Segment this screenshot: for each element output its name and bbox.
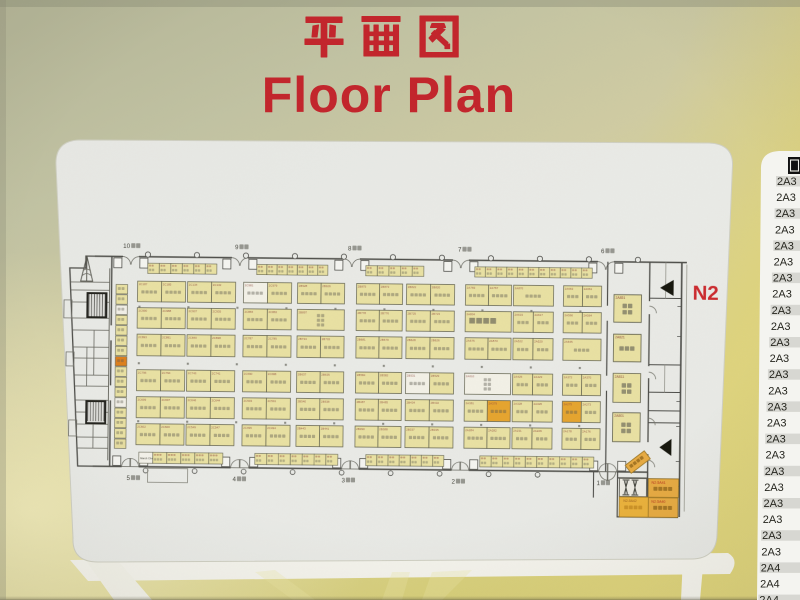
svg-text:2A3: 2A3 (768, 401, 788, 413)
svg-text:2A3: 2A3 (769, 369, 789, 381)
svg-text:2A3: 2A3 (772, 305, 792, 317)
svg-text:2A3: 2A3 (771, 321, 791, 333)
svg-text:2A3: 2A3 (765, 466, 785, 478)
svg-text:2A3: 2A3 (766, 450, 786, 462)
svg-text:2A3: 2A3 (773, 273, 793, 285)
svg-text:2A4: 2A4 (759, 595, 779, 600)
svg-text:2A3: 2A3 (761, 546, 781, 558)
svg-text:2A3: 2A3 (770, 337, 790, 349)
svg-text:2A3: 2A3 (764, 482, 784, 494)
svg-text:2A3: 2A3 (774, 257, 794, 269)
svg-text:2A4: 2A4 (760, 579, 780, 591)
svg-text:2A3: 2A3 (770, 353, 790, 365)
svg-text:2A3: 2A3 (766, 434, 786, 446)
svg-text:2A3: 2A3 (776, 192, 796, 204)
svg-text:2A3: 2A3 (763, 514, 783, 526)
svg-text:2A3: 2A3 (767, 418, 787, 430)
svg-text:2A3: 2A3 (772, 289, 792, 301)
svg-text:2A3: 2A3 (775, 224, 795, 236)
svg-text:2A3: 2A3 (762, 530, 782, 542)
svg-text:2A4: 2A4 (761, 562, 781, 574)
svg-text:2A3: 2A3 (768, 385, 788, 397)
svg-text:2A3: 2A3 (777, 176, 797, 188)
svg-text:2A3: 2A3 (764, 498, 784, 510)
svg-text:2A3: 2A3 (774, 240, 794, 252)
svg-text:2A3: 2A3 (776, 208, 796, 220)
